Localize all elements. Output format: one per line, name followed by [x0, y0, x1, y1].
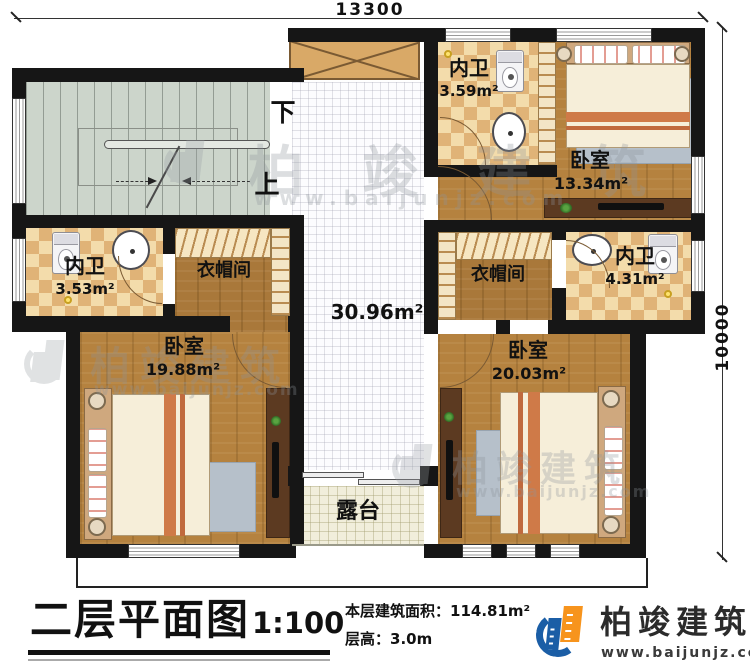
- dimension-label-top: 13300: [300, 0, 440, 20]
- window: [12, 238, 26, 302]
- nightstand: [674, 46, 690, 62]
- room-area: 30.96m²: [322, 302, 432, 323]
- room-area: 19.88m²: [140, 362, 226, 379]
- hanger-rod: [456, 232, 552, 260]
- wall-segment: [12, 68, 304, 82]
- dimension-tick: [10, 11, 21, 22]
- tv: [272, 442, 279, 498]
- room-label: 内卫: [56, 256, 114, 277]
- brand-logo: [536, 604, 594, 662]
- shelf-rack: [271, 228, 290, 316]
- floor-plan-page: 柏竣建筑 www.baijunjz.com 柏竣建筑 www.baijunjz.…: [0, 0, 750, 670]
- window: [445, 28, 511, 42]
- room-area: 13.34m²: [548, 176, 634, 193]
- wall-segment: [290, 215, 304, 332]
- floor-height-text: 层高：3.0m: [345, 628, 432, 649]
- room-label: 卧室: [152, 336, 216, 357]
- brand-logo-icon: [560, 606, 583, 642]
- plant: [444, 412, 454, 422]
- dimension-tick: [697, 11, 708, 22]
- watermark-url: www.baijunjz.com: [456, 482, 651, 501]
- hanger-rod: [175, 228, 271, 258]
- roof-outline: [76, 586, 648, 588]
- title-underline: [28, 650, 330, 655]
- page-title: 二层平面图: [30, 598, 252, 642]
- blanket-stripe: [566, 112, 690, 122]
- floor-height-label: 层高：: [345, 630, 390, 648]
- wall-segment: [496, 320, 510, 334]
- floor-height-value: 3.0m: [390, 630, 432, 648]
- room-label: 卧室: [496, 340, 560, 361]
- wall-segment: [12, 316, 230, 332]
- bed: [112, 394, 210, 536]
- room-label: 卧室: [558, 150, 622, 171]
- watermark-url: www.baijunjz.com: [94, 380, 300, 400]
- title-underline-thin: [28, 659, 330, 661]
- window: [128, 544, 240, 558]
- blanket-stripe: [164, 394, 176, 536]
- room-label: 内卫: [606, 246, 664, 267]
- wardrobe-cabinet: [289, 40, 420, 80]
- room-label: 上: [252, 172, 282, 198]
- floor-area-text: 本层建筑面积：114.81m²: [345, 600, 530, 621]
- wall-segment: [424, 220, 705, 232]
- blanket-stripe: [180, 394, 185, 536]
- wall-segment: [552, 232, 566, 240]
- window: [691, 240, 705, 292]
- room-area: 4.31m²: [600, 272, 670, 288]
- pillow: [574, 45, 628, 64]
- dimension-line-right: [722, 28, 723, 560]
- window: [550, 544, 580, 558]
- room-area: 3.53m²: [50, 282, 120, 298]
- scale-label: 1:100: [252, 608, 332, 638]
- watermark-logo-icon: [28, 336, 74, 390]
- nightstand: [556, 46, 572, 62]
- nightstand: [88, 518, 106, 536]
- terrace-edge: [292, 544, 424, 546]
- room-label: 露台: [322, 500, 394, 523]
- wall-segment: [163, 304, 175, 316]
- room-label: 衣帽间: [178, 262, 270, 281]
- watermark: 柏竣建筑 www.baijunjz.com: [168, 128, 708, 206]
- window: [556, 28, 652, 42]
- wall-segment: [12, 215, 304, 228]
- room-area: 20.03m²: [486, 366, 572, 383]
- stair-arrow-line-left: [116, 181, 148, 182]
- brand-website: www.baijunjz.com: [601, 646, 746, 661]
- watermark-logo-icon: [396, 440, 438, 490]
- nightstand: [602, 516, 620, 534]
- room-label: 衣帽间: [452, 266, 544, 285]
- room-area: 3.59m²: [436, 84, 502, 100]
- roof-outline: [76, 558, 78, 588]
- floor-area-label: 本层建筑面积：: [345, 602, 450, 620]
- wall-segment: [552, 288, 566, 320]
- window: [506, 544, 536, 558]
- wall-segment: [548, 320, 705, 334]
- window: [462, 544, 492, 558]
- roof-outline: [646, 558, 648, 588]
- room-label: 下: [268, 100, 298, 126]
- wall-segment: [163, 228, 175, 254]
- stair-arrowhead-right: [148, 177, 157, 185]
- plant: [271, 416, 281, 426]
- pillow: [88, 474, 107, 518]
- watermark: 柏竣建筑 www.baijunjz.com: [396, 436, 706, 508]
- pillow: [88, 428, 107, 472]
- nightstand: [602, 390, 620, 408]
- brand-name: 柏竣建筑: [600, 606, 745, 640]
- watermark-url: www.baijunjz.com: [254, 186, 570, 210]
- room-label: 内卫: [440, 58, 498, 79]
- window: [12, 98, 26, 204]
- floor-area-value: 114.81m²: [450, 602, 530, 620]
- sliding-door: [302, 472, 364, 478]
- lamp-icon: [664, 290, 672, 298]
- watermark-logo-icon: [168, 136, 218, 194]
- dimension-label-right: 10000: [713, 302, 733, 372]
